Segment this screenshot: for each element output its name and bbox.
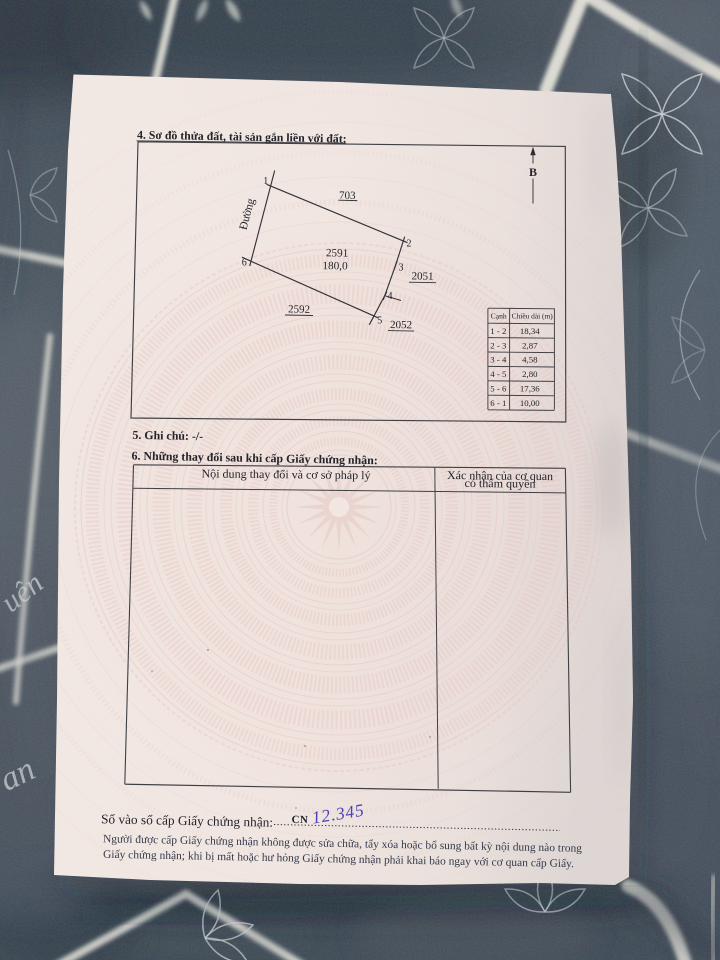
svg-text:2051: 2051 xyxy=(411,270,433,282)
svg-text:có thẩm quyền: có thẩm quyền xyxy=(464,476,535,491)
svg-text:2: 2 xyxy=(407,239,412,250)
svg-text:Nội dung thay đổi và cơ sở phá: Nội dung thay đổi và cơ sở pháp lý xyxy=(201,466,370,482)
svg-text:703: 703 xyxy=(339,190,356,202)
svg-text:18,34: 18,34 xyxy=(520,326,540,336)
svg-text:B: B xyxy=(529,165,537,179)
svg-text:6: 6 xyxy=(242,257,247,268)
svg-text:1: 1 xyxy=(263,176,268,187)
svg-text:17,36: 17,36 xyxy=(520,384,540,394)
svg-text:CN: CN xyxy=(291,814,308,826)
svg-text:4,58: 4,58 xyxy=(522,355,538,365)
svg-text:2,87: 2,87 xyxy=(522,340,538,350)
svg-text:4 - 5: 4 - 5 xyxy=(490,369,507,379)
svg-text:5 - 6: 5 - 6 xyxy=(490,384,507,394)
svg-text:3: 3 xyxy=(399,263,404,274)
svg-text:2592: 2592 xyxy=(288,303,310,315)
svg-text:6 - 1: 6 - 1 xyxy=(490,398,506,408)
svg-text:3 - 4: 3 - 4 xyxy=(490,355,507,365)
svg-text:1 - 2: 1 - 2 xyxy=(490,326,506,336)
svg-text:10,00: 10,00 xyxy=(520,398,540,408)
svg-text:180,0: 180,0 xyxy=(322,260,348,272)
svg-text:2052: 2052 xyxy=(390,319,412,331)
svg-text:Chiều dài (m): Chiều dài (m) xyxy=(512,312,554,321)
svg-text:2591: 2591 xyxy=(326,247,349,259)
svg-text:5. Ghi chú: -/-: 5. Ghi chú: -/- xyxy=(132,428,203,443)
svg-text:5: 5 xyxy=(377,315,382,326)
svg-text:2 - 3: 2 - 3 xyxy=(490,340,507,350)
svg-text:4: 4 xyxy=(388,291,393,302)
svg-text:2,80: 2,80 xyxy=(522,369,538,379)
svg-text:Cạnh: Cạnh xyxy=(491,312,507,321)
